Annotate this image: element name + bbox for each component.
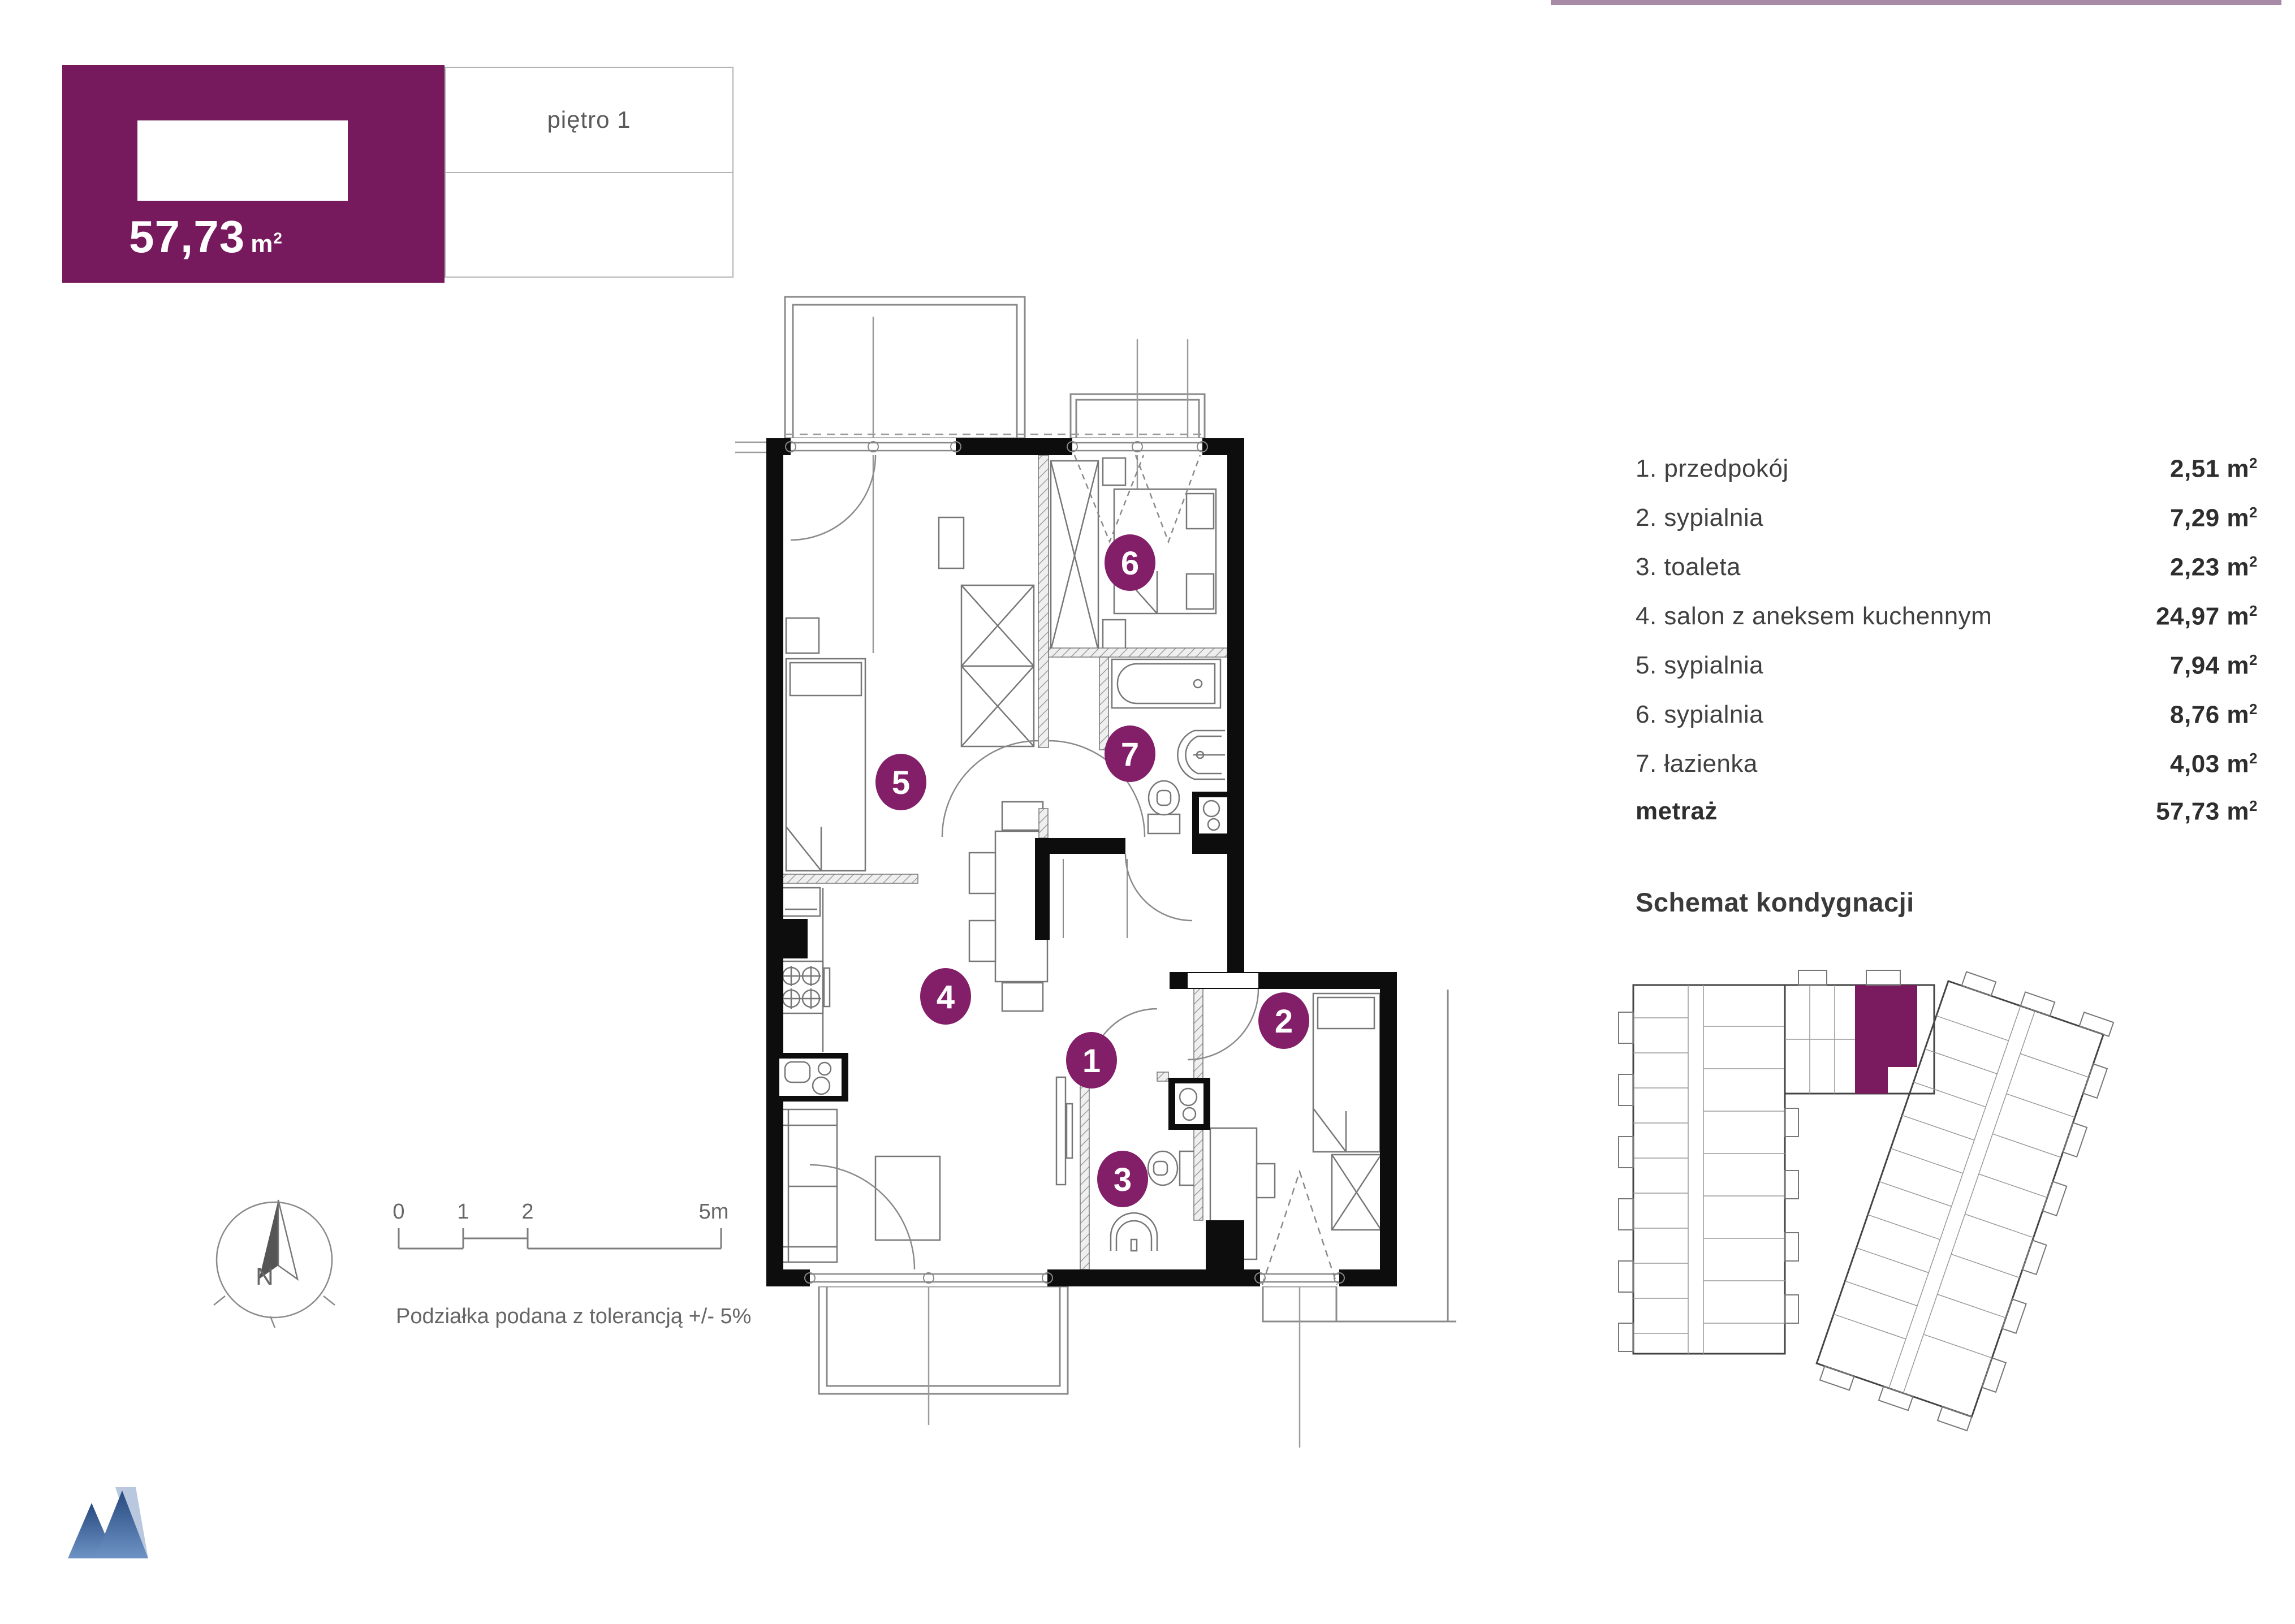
furniture: [774, 458, 1381, 1262]
scale-labels: 0 1 2 5m: [392, 1200, 728, 1224]
svg-text:4: 4: [937, 979, 955, 1016]
compass: N: [214, 1200, 335, 1328]
schematic-left-wing: [1619, 985, 1798, 1354]
window-room2: [1260, 1269, 1339, 1286]
svg-text:1: 1: [1082, 1043, 1101, 1079]
svg-text:6: 6: [1121, 545, 1139, 582]
svg-text:3: 3: [1114, 1161, 1132, 1198]
schematic-top-bar: [1785, 970, 1934, 1094]
scale-tolerance-note: Podziałka podana z tolerancją +/- 5%: [396, 1305, 751, 1328]
floor-plan-drawing: 1 2 3 4 5 6 7: [0, 0, 2295, 1624]
window-room6: [1072, 438, 1202, 455]
room-marker-1: 1: [1066, 1032, 1117, 1089]
balcony-top: [785, 297, 1205, 438]
room-marker-5: 5: [875, 754, 926, 810]
room-marker-6: 6: [1105, 534, 1155, 591]
svg-text:2: 2: [521, 1200, 533, 1224]
building-schematic: [1619, 967, 2122, 1435]
svg-text:7: 7: [1121, 736, 1139, 773]
room-marker-7: 7: [1105, 725, 1155, 782]
mountain-logo-icon: [68, 1487, 148, 1558]
room-marker-3: 3: [1097, 1151, 1148, 1207]
svg-text:1: 1: [457, 1200, 469, 1224]
room-marker-2: 2: [1258, 992, 1309, 1049]
window-salon: [810, 1269, 1047, 1286]
north-label: N: [256, 1263, 274, 1290]
svg-text:5m: 5m: [699, 1200, 729, 1224]
floorplan-sheet: 57,73m2 piętro 1 1. przedpokój 2,51 m2 2…: [0, 0, 2295, 1624]
window-room5: [791, 438, 956, 455]
room-marker-4: 4: [920, 968, 971, 1025]
svg-text:2: 2: [1275, 1003, 1293, 1040]
svg-text:0: 0: [392, 1200, 404, 1224]
svg-text:5: 5: [892, 765, 910, 801]
scale-bar: [399, 1228, 721, 1249]
highlighted-apartment-unit: [1855, 985, 1917, 1067]
